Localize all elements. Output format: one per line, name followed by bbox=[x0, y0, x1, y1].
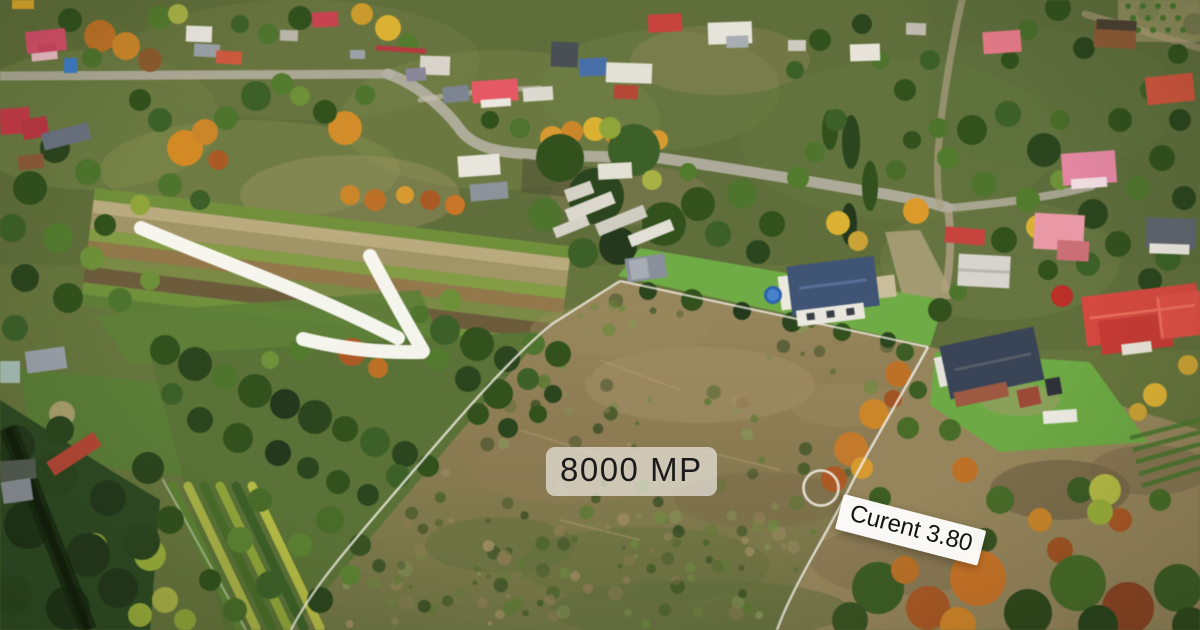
area-label: 8000 MP bbox=[546, 447, 717, 496]
aerial-photo bbox=[0, 0, 1200, 630]
aerial-photo-stage: 8000 MP Curent 3.80 bbox=[0, 0, 1200, 630]
